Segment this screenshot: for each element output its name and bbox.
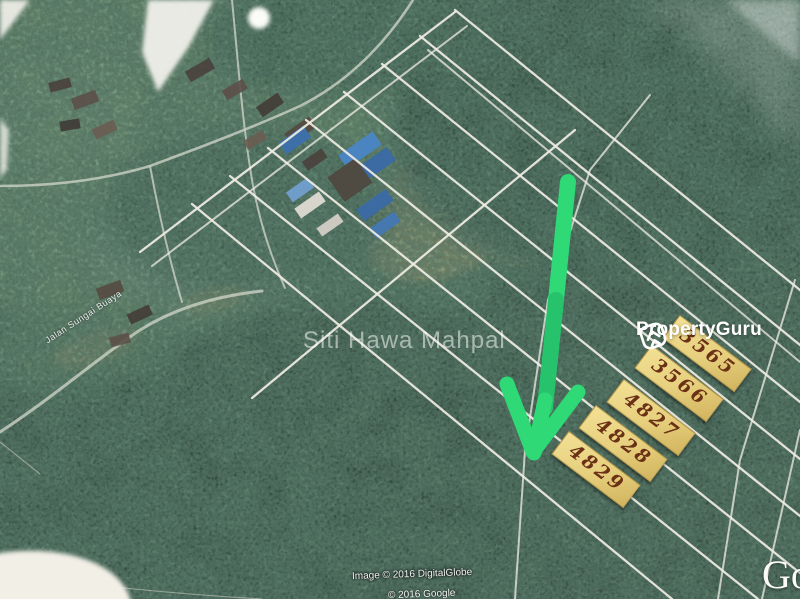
terrain-layer <box>0 0 800 599</box>
agent-name-watermark: Siti Hawa Mahpal <box>303 327 506 355</box>
google-watermark: Google <box>762 551 800 598</box>
water-tank <box>248 7 270 29</box>
satellite-map-graphic <box>0 0 800 599</box>
propertyguru-logo-icon <box>636 319 670 353</box>
imagery-attribution-2: © 2016 Google <box>388 588 456 599</box>
brand-watermark: PropertyGuru <box>636 319 762 341</box>
listing-photo[interactable]: 3565 3566 4827 4828 4829 Jalan Sungai Bu… <box>0 0 800 599</box>
